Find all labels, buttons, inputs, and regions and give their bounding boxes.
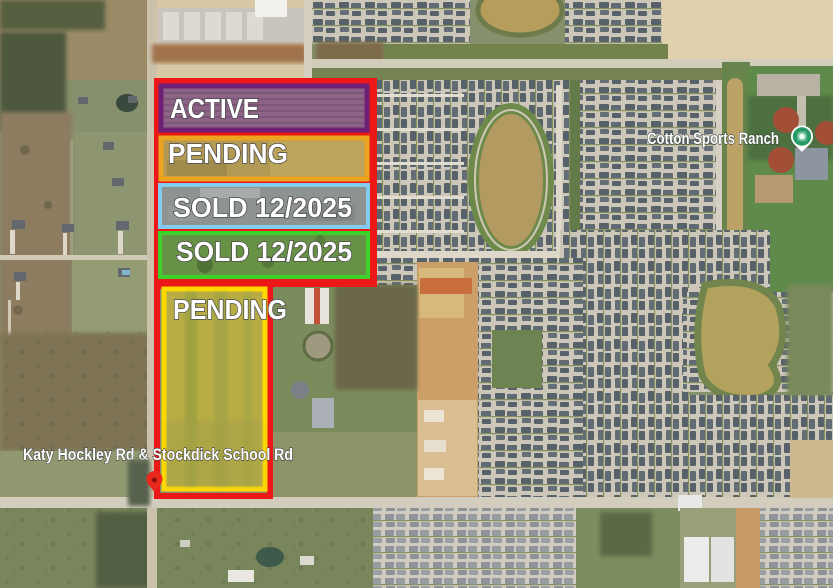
svg-text:SOLD 12/2025: SOLD 12/2025 <box>176 236 352 267</box>
svg-text:PENDING: PENDING <box>173 294 287 325</box>
svg-text:SOLD 12/2025: SOLD 12/2025 <box>173 192 352 223</box>
svg-text:Cotton Sports Ranch: Cotton Sports Ranch <box>647 129 779 148</box>
svg-text:ACTIVE: ACTIVE <box>170 93 259 124</box>
svg-text:Katy Hockley Rd & Stockdick Sc: Katy Hockley Rd & Stockdick School Rd <box>23 445 293 464</box>
svg-text:PENDING: PENDING <box>168 138 288 169</box>
